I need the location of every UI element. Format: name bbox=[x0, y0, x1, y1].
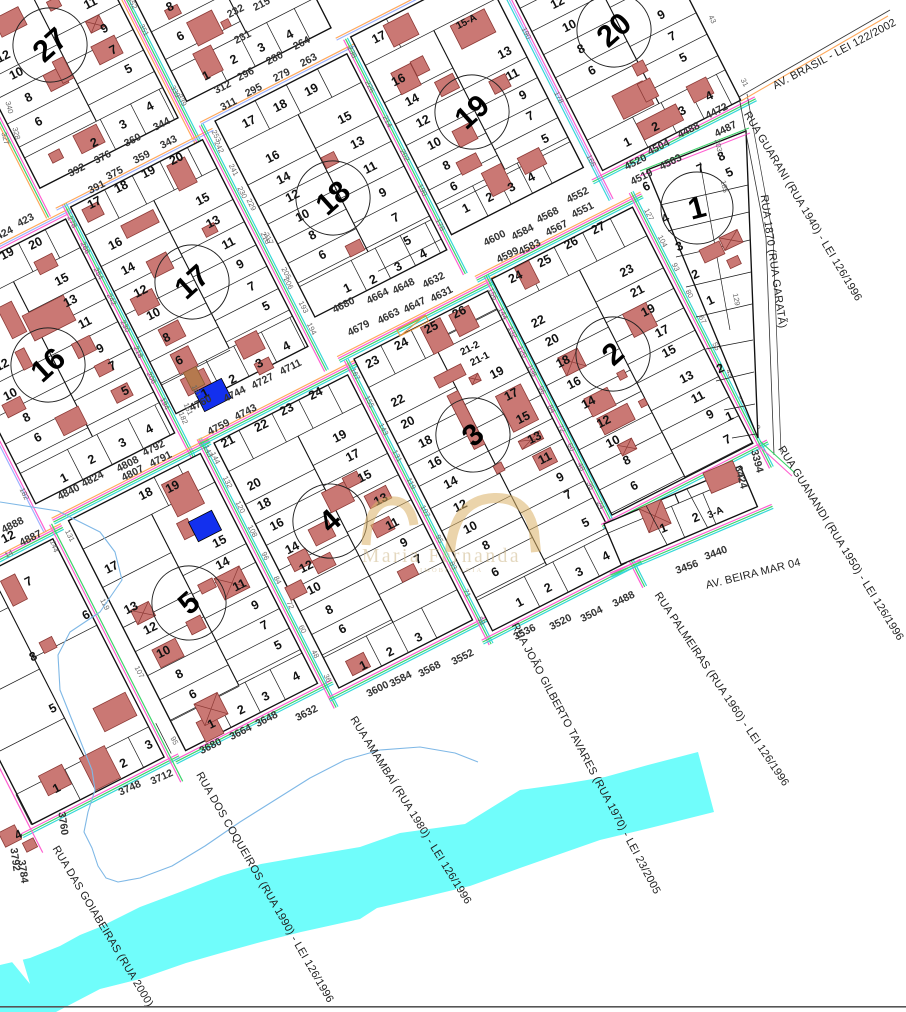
svg-text:IMOBILIARIA: IMOBILIARIA bbox=[420, 567, 483, 574]
svg-text:Maria Fernanda: Maria Fernanda bbox=[362, 546, 521, 567]
